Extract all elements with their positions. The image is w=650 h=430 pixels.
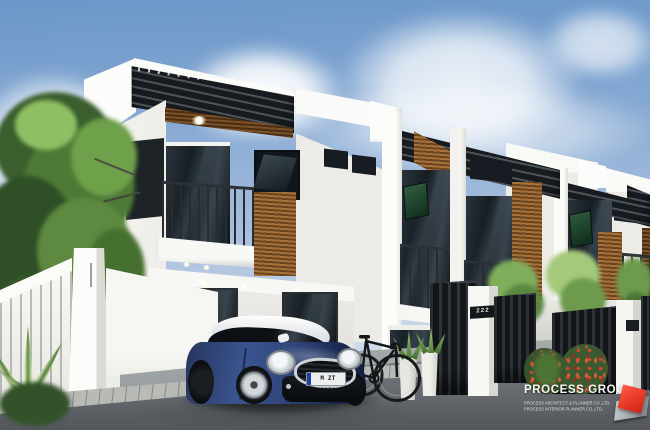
gate-pillar-1: [468, 286, 498, 396]
watermark-line2: PROCESS INTERIOR PLANNER CO.,LTD.: [524, 407, 612, 413]
car-headlight-left: [266, 350, 296, 375]
process-group-logo: [613, 386, 650, 424]
unit2-open-awning-window-1: [403, 182, 429, 221]
agave-leaf: [434, 332, 448, 355]
unit1-ground-downlight-2: [238, 284, 250, 290]
unit3-corner-fascia: [578, 156, 606, 188]
car-headlight-right: [337, 348, 362, 370]
unit1-balcony-railing: [162, 181, 254, 248]
agave-leaf: [22, 326, 34, 388]
gate-pillar-2: [616, 300, 642, 394]
unit2-clerestory-window-3: [470, 160, 512, 183]
car-wheel-rear: [188, 360, 214, 404]
green-bush-mid: [534, 352, 560, 386]
car-fog-light: [286, 384, 291, 389]
tree-foliage: [71, 118, 137, 196]
mini-cooper-car: M ZT 4350: [186, 312, 372, 412]
agave-leaf: [428, 327, 434, 353]
house-number: 222: [470, 305, 496, 318]
grass-clump: [0, 382, 70, 426]
unit3-open-awning-window: [569, 210, 593, 248]
unit1-wood-panel: [254, 192, 296, 276]
folding-gate-d: [641, 296, 650, 390]
unit1-soffit-downlight: [190, 116, 208, 125]
unit1-balcony-downlight-2: [202, 265, 211, 270]
cloud-top-right: [540, 5, 650, 75]
gate-pillar-2-plate: [626, 320, 639, 331]
agave-plant-foreground: [0, 326, 76, 430]
license-plate-text: M ZT 4350: [311, 373, 345, 385]
fence-pillar-slot: [90, 263, 92, 287]
car-wheel-front-left: [236, 366, 272, 404]
architectural-rendering-scene: 222: [0, 0, 650, 430]
car-license-plate: M ZT 4350: [306, 372, 346, 386]
tree-foliage-highlight: [15, 100, 77, 150]
gate-house-number-plate: 222: [470, 305, 496, 319]
unit1-ground-downlight-1: [198, 280, 210, 286]
unit1-balcony-downlight-1: [182, 262, 191, 267]
